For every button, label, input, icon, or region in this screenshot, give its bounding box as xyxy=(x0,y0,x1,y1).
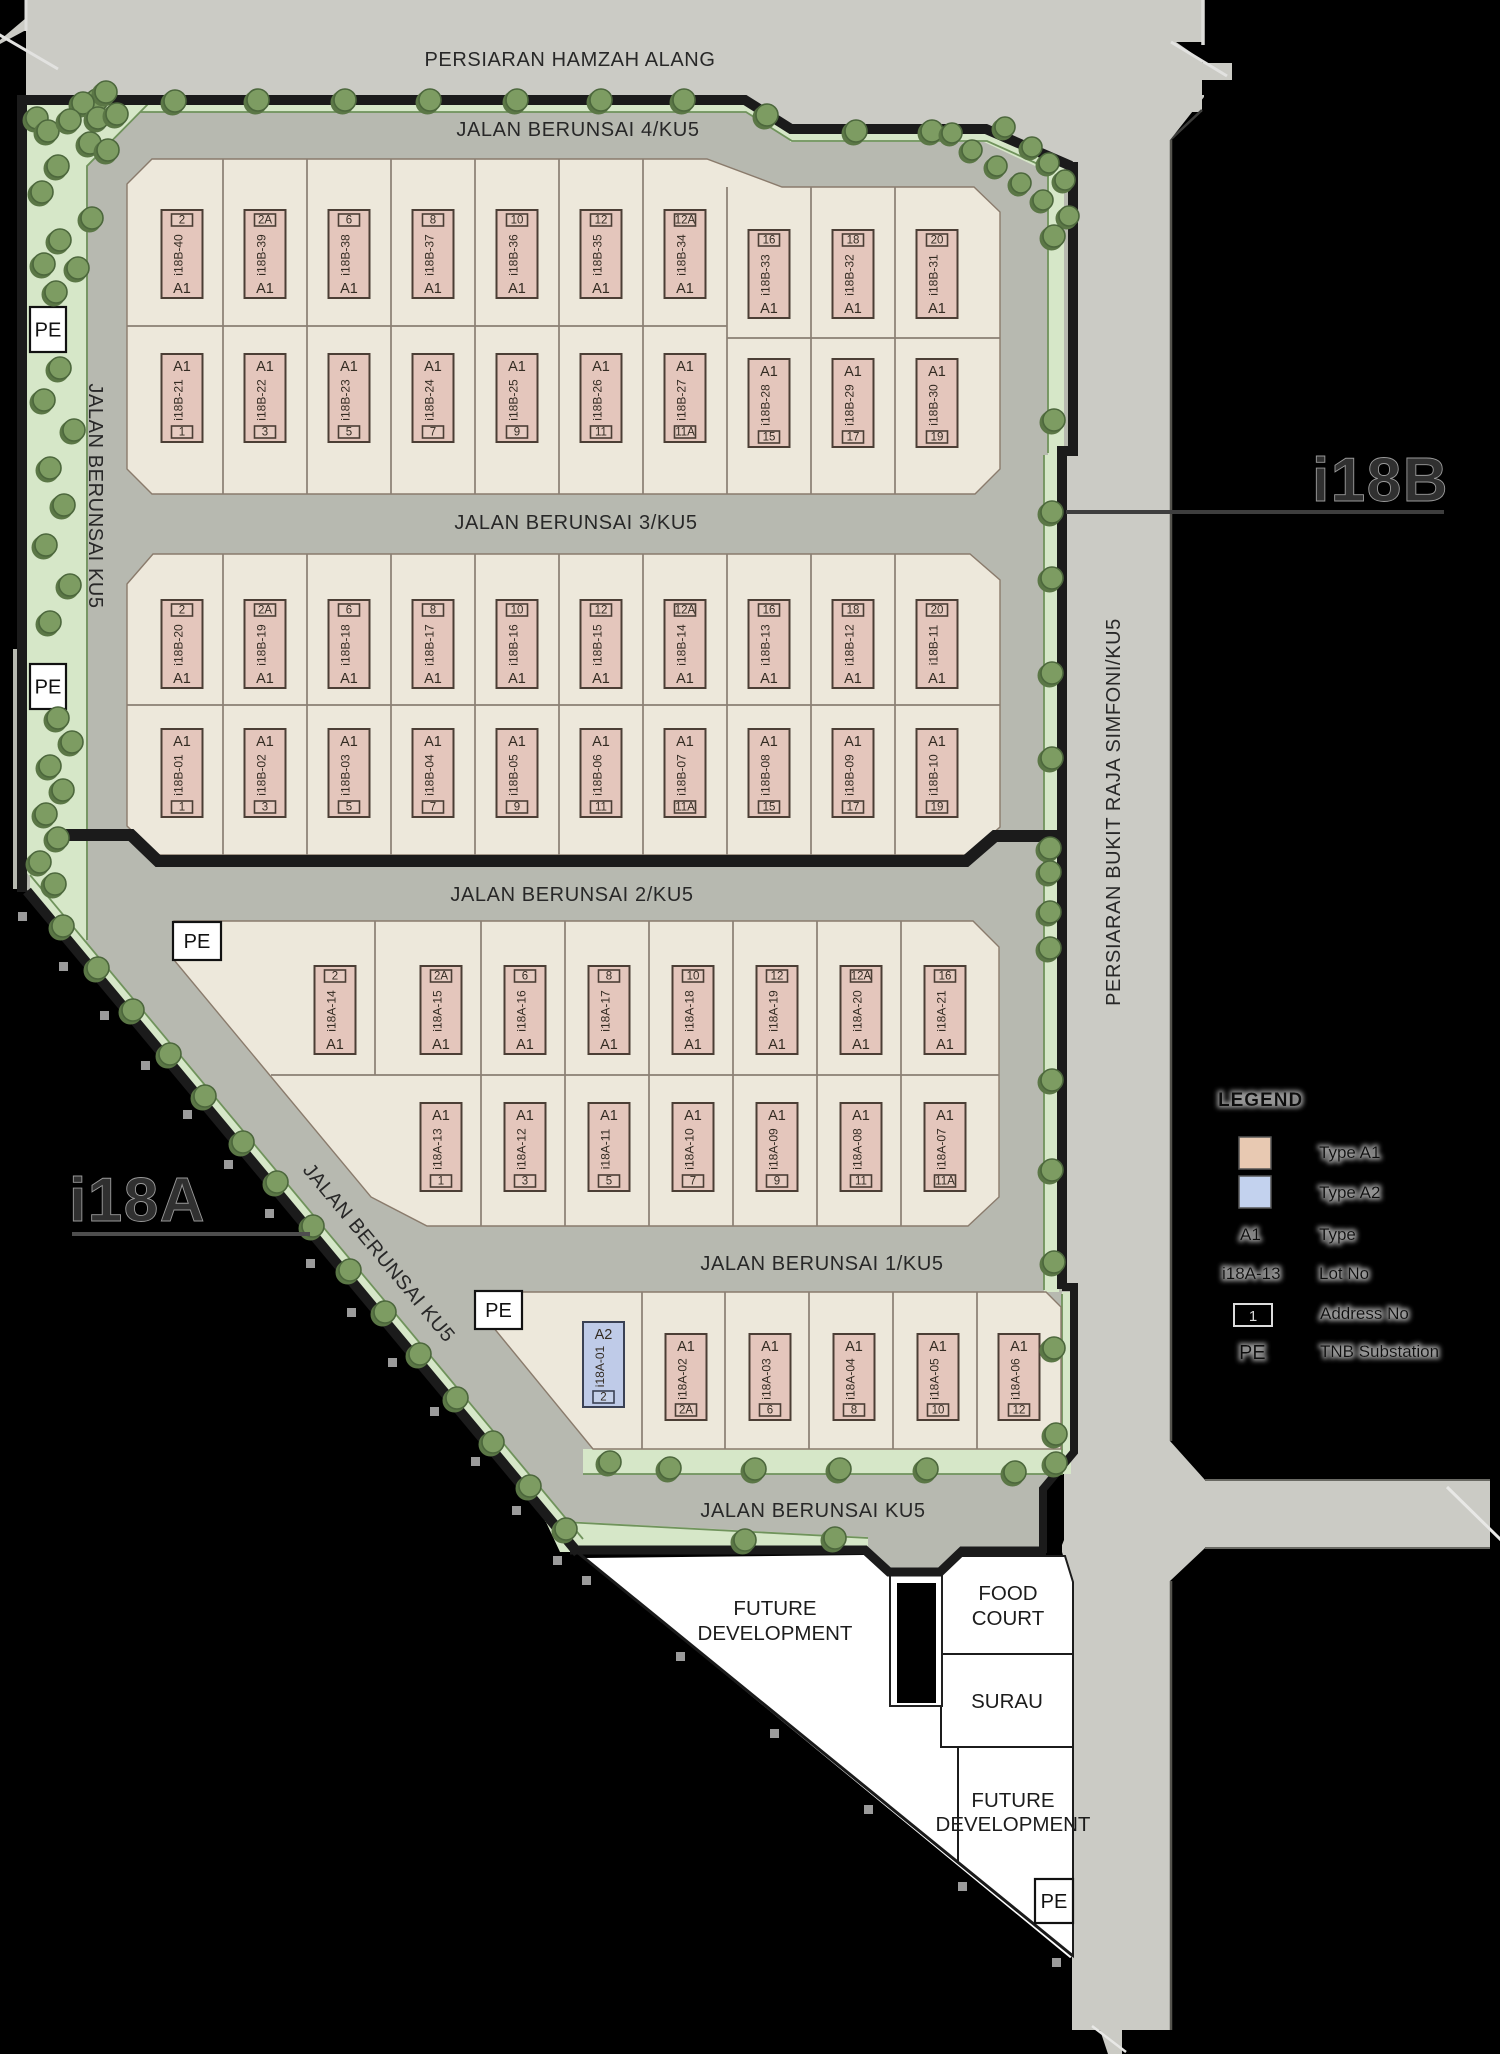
svg-text:2: 2 xyxy=(600,1392,606,1404)
svg-text:A1: A1 xyxy=(928,671,946,687)
svg-text:COURT: COURT xyxy=(972,1607,1045,1630)
svg-text:18: 18 xyxy=(847,605,860,617)
svg-text:A1: A1 xyxy=(340,281,358,297)
svg-text:8: 8 xyxy=(430,605,436,617)
svg-text:12A: 12A xyxy=(851,971,872,983)
svg-text:2: 2 xyxy=(332,971,338,983)
svg-text:A1: A1 xyxy=(592,281,610,297)
svg-text:A1: A1 xyxy=(508,359,526,375)
svg-text:1: 1 xyxy=(179,802,185,814)
svg-text:16: 16 xyxy=(939,971,952,983)
svg-text:A1: A1 xyxy=(768,1108,786,1124)
svg-text:A1: A1 xyxy=(844,734,862,750)
svg-text:i18A-06: i18A-06 xyxy=(1009,1358,1023,1400)
svg-text:A1: A1 xyxy=(845,1339,863,1355)
svg-text:i18B-13: i18B-13 xyxy=(759,624,773,666)
svg-text:12: 12 xyxy=(595,605,608,617)
svg-text:i18A-08: i18A-08 xyxy=(851,1128,865,1170)
svg-text:8: 8 xyxy=(430,215,436,227)
svg-text:A1: A1 xyxy=(852,1108,870,1124)
svg-text:5: 5 xyxy=(346,802,352,814)
svg-text:A1: A1 xyxy=(424,734,442,750)
svg-text:PE: PE xyxy=(1239,1342,1266,1364)
svg-text:i18A-01: i18A-01 xyxy=(593,1346,607,1388)
svg-text:A1: A1 xyxy=(684,1037,702,1053)
svg-text:i18B-28: i18B-28 xyxy=(759,384,773,426)
svg-text:i18A-09: i18A-09 xyxy=(767,1128,781,1170)
svg-text:A1: A1 xyxy=(508,734,526,750)
svg-text:i18B-30: i18B-30 xyxy=(927,384,941,426)
svg-text:Type A2: Type A2 xyxy=(1319,1183,1380,1202)
svg-text:i18B-27: i18B-27 xyxy=(675,379,689,421)
svg-text:19: 19 xyxy=(931,432,944,444)
svg-text:JALAN BERUNSAI 1/KU5: JALAN BERUNSAI 1/KU5 xyxy=(700,1253,943,1275)
svg-text:i18A-18: i18A-18 xyxy=(683,990,697,1032)
svg-text:i18B-15: i18B-15 xyxy=(591,624,605,666)
svg-text:i18B-18: i18B-18 xyxy=(339,624,353,666)
svg-text:A1: A1 xyxy=(592,671,610,687)
svg-text:i18A-13: i18A-13 xyxy=(1222,1264,1281,1283)
svg-text:i18B-07: i18B-07 xyxy=(675,754,689,796)
svg-text:i18B-11: i18B-11 xyxy=(927,624,941,665)
svg-text:i18B-40: i18B-40 xyxy=(172,234,186,276)
svg-text:i18B-26: i18B-26 xyxy=(591,379,605,421)
svg-text:A1: A1 xyxy=(173,281,191,297)
svg-text:A1: A1 xyxy=(929,1339,947,1355)
svg-text:i18B-22: i18B-22 xyxy=(255,379,269,421)
svg-text:i18A: i18A xyxy=(69,1166,206,1235)
svg-text:Type A1: Type A1 xyxy=(1319,1143,1380,1162)
svg-text:i18B-08: i18B-08 xyxy=(759,754,773,796)
svg-text:i18B-01: i18B-01 xyxy=(172,754,186,796)
svg-text:i18A-04: i18A-04 xyxy=(844,1358,858,1400)
svg-text:JALAN BERUNSAI KU5: JALAN BERUNSAI KU5 xyxy=(84,383,106,608)
svg-text:6: 6 xyxy=(346,215,352,227)
svg-text:i18B-02: i18B-02 xyxy=(255,754,269,796)
svg-text:1: 1 xyxy=(179,427,185,439)
svg-text:A1: A1 xyxy=(424,359,442,375)
svg-text:i18B-25: i18B-25 xyxy=(507,379,521,421)
svg-text:A1: A1 xyxy=(592,734,610,750)
svg-text:SURAU: SURAU xyxy=(971,1690,1043,1713)
svg-text:i18B-03: i18B-03 xyxy=(339,754,353,796)
svg-text:FUTURE: FUTURE xyxy=(971,1789,1054,1812)
svg-text:i18B-21: i18B-21 xyxy=(172,379,186,421)
svg-text:i18B-17: i18B-17 xyxy=(423,624,437,666)
svg-text:A1: A1 xyxy=(936,1108,954,1124)
svg-text:20: 20 xyxy=(931,235,944,247)
svg-text:11: 11 xyxy=(595,802,607,814)
svg-text:i18B-12: i18B-12 xyxy=(843,624,857,666)
svg-text:2A: 2A xyxy=(679,1405,693,1417)
svg-text:DEVELOPMENT: DEVELOPMENT xyxy=(698,1622,853,1645)
svg-text:A1: A1 xyxy=(256,734,274,750)
svg-text:2A: 2A xyxy=(258,215,272,227)
svg-text:12: 12 xyxy=(1013,1405,1026,1417)
svg-text:9: 9 xyxy=(514,427,520,439)
svg-text:7: 7 xyxy=(690,1176,696,1188)
svg-text:A1: A1 xyxy=(760,671,778,687)
svg-text:12A: 12A xyxy=(675,215,696,227)
svg-text:i18B-16: i18B-16 xyxy=(507,624,521,666)
svg-text:2: 2 xyxy=(179,605,185,617)
svg-text:10: 10 xyxy=(511,215,524,227)
svg-text:A1: A1 xyxy=(676,359,694,375)
svg-text:i18A-11: i18A-11 xyxy=(599,1128,613,1169)
svg-text:3: 3 xyxy=(262,427,268,439)
svg-text:A1: A1 xyxy=(516,1108,534,1124)
svg-text:i18B-38: i18B-38 xyxy=(339,234,353,276)
svg-text:A1: A1 xyxy=(173,671,191,687)
svg-text:i18A-03: i18A-03 xyxy=(760,1358,774,1400)
svg-text:i18B-06: i18B-06 xyxy=(591,754,605,796)
svg-text:6: 6 xyxy=(346,605,352,617)
svg-text:A1: A1 xyxy=(928,364,946,380)
svg-text:A1: A1 xyxy=(600,1108,618,1124)
svg-text:A1: A1 xyxy=(432,1037,450,1053)
svg-text:i18B: i18B xyxy=(1312,446,1449,515)
svg-text:i18A-07: i18A-07 xyxy=(935,1128,949,1170)
svg-text:PE: PE xyxy=(485,1300,512,1322)
svg-text:A1: A1 xyxy=(677,1339,695,1355)
svg-text:A1: A1 xyxy=(852,1037,870,1053)
svg-text:2A: 2A xyxy=(258,605,272,617)
svg-text:A1: A1 xyxy=(760,301,778,317)
svg-text:i18B-31: i18B-31 xyxy=(927,254,941,296)
svg-text:PE: PE xyxy=(35,320,62,342)
svg-text:A1: A1 xyxy=(424,671,442,687)
svg-text:i18B-10: i18B-10 xyxy=(927,754,941,796)
svg-text:20: 20 xyxy=(931,605,944,617)
svg-text:i18B-04: i18B-04 xyxy=(423,754,437,796)
svg-text:i18A-19: i18A-19 xyxy=(767,990,781,1032)
svg-text:A1: A1 xyxy=(761,1339,779,1355)
svg-text:10: 10 xyxy=(687,971,700,983)
svg-text:i18B-14: i18B-14 xyxy=(675,624,689,666)
svg-text:A1: A1 xyxy=(1010,1339,1028,1355)
svg-text:Address No: Address No xyxy=(1320,1304,1409,1323)
svg-text:1: 1 xyxy=(438,1176,444,1188)
svg-text:i18A-17: i18A-17 xyxy=(599,990,613,1032)
svg-text:PE: PE xyxy=(35,677,62,699)
svg-text:12A: 12A xyxy=(675,605,696,617)
svg-text:11: 11 xyxy=(855,1176,867,1188)
svg-text:12: 12 xyxy=(595,215,608,227)
svg-text:9: 9 xyxy=(774,1176,780,1188)
svg-text:PE: PE xyxy=(1041,1891,1068,1913)
svg-text:A1: A1 xyxy=(256,359,274,375)
svg-text:8: 8 xyxy=(851,1405,857,1417)
svg-text:A1: A1 xyxy=(326,1037,344,1053)
svg-text:i18B-09: i18B-09 xyxy=(843,754,857,796)
svg-text:6: 6 xyxy=(522,971,528,983)
svg-text:FUTURE: FUTURE xyxy=(733,1597,816,1620)
svg-text:i18B-29: i18B-29 xyxy=(843,384,857,426)
svg-text:17: 17 xyxy=(847,802,860,814)
svg-text:A1: A1 xyxy=(256,281,274,297)
svg-text:FOOD: FOOD xyxy=(978,1582,1037,1605)
svg-text:i18B-37: i18B-37 xyxy=(423,234,437,276)
svg-text:10: 10 xyxy=(932,1405,945,1417)
svg-text:i18A-10: i18A-10 xyxy=(683,1128,697,1170)
svg-text:11A: 11A xyxy=(675,427,695,439)
svg-text:A1: A1 xyxy=(340,734,358,750)
svg-text:PERSIARAN BUKIT RAJA SIMFONI/K: PERSIARAN BUKIT RAJA SIMFONI/KU5 xyxy=(1103,618,1125,1006)
svg-text:i18A-13: i18A-13 xyxy=(431,1128,445,1170)
svg-text:2: 2 xyxy=(179,215,185,227)
svg-text:15: 15 xyxy=(763,802,776,814)
svg-text:A1: A1 xyxy=(684,1108,702,1124)
svg-text:A1: A1 xyxy=(508,671,526,687)
svg-text:JALAN BERUNSAI 3/KU5: JALAN BERUNSAI 3/KU5 xyxy=(454,512,697,534)
svg-text:16: 16 xyxy=(763,235,776,247)
svg-text:A1: A1 xyxy=(173,359,191,375)
svg-text:A1: A1 xyxy=(844,671,862,687)
svg-text:3: 3 xyxy=(522,1176,528,1188)
svg-text:A1: A1 xyxy=(516,1037,534,1053)
svg-text:A1: A1 xyxy=(844,364,862,380)
svg-text:9: 9 xyxy=(514,802,520,814)
svg-text:i18A-05: i18A-05 xyxy=(928,1358,942,1400)
svg-text:A1: A1 xyxy=(676,734,694,750)
svg-text:i18B-34: i18B-34 xyxy=(675,234,689,276)
svg-text:16: 16 xyxy=(763,605,776,617)
svg-text:17: 17 xyxy=(847,432,860,444)
svg-text:3: 3 xyxy=(262,802,268,814)
svg-text:12: 12 xyxy=(771,971,784,983)
svg-text:i18A-21: i18A-21 xyxy=(935,990,949,1032)
svg-text:19: 19 xyxy=(931,802,944,814)
svg-text:LEGEND: LEGEND xyxy=(1218,1090,1303,1111)
svg-text:A1: A1 xyxy=(256,671,274,687)
svg-text:5: 5 xyxy=(606,1176,612,1188)
svg-text:1: 1 xyxy=(1249,1308,1257,1325)
svg-text:A1: A1 xyxy=(928,301,946,317)
svg-text:A1: A1 xyxy=(592,359,610,375)
svg-text:i18A-20: i18A-20 xyxy=(851,990,865,1032)
svg-text:18: 18 xyxy=(847,235,860,247)
svg-text:i18B-33: i18B-33 xyxy=(759,254,773,296)
svg-text:i18A-15: i18A-15 xyxy=(431,990,445,1032)
svg-text:7: 7 xyxy=(430,427,436,439)
svg-text:i18B-39: i18B-39 xyxy=(255,234,269,276)
svg-text:A1: A1 xyxy=(676,281,694,297)
svg-text:i18B-05: i18B-05 xyxy=(507,754,521,796)
svg-text:A1: A1 xyxy=(760,734,778,750)
svg-text:TNB Substation: TNB Substation xyxy=(1320,1342,1439,1361)
svg-text:i18B-24: i18B-24 xyxy=(423,379,437,421)
svg-text:6: 6 xyxy=(767,1405,773,1417)
svg-text:5: 5 xyxy=(346,427,352,439)
svg-text:A1: A1 xyxy=(340,671,358,687)
svg-text:A1: A1 xyxy=(432,1108,450,1124)
svg-text:A1: A1 xyxy=(936,1037,954,1053)
svg-text:i18A-02: i18A-02 xyxy=(676,1358,690,1400)
svg-text:JALAN BERUNSAI 4/KU5: JALAN BERUNSAI 4/KU5 xyxy=(456,119,699,141)
svg-text:i18A-12: i18A-12 xyxy=(515,1128,529,1170)
svg-text:i18B-36: i18B-36 xyxy=(507,234,521,276)
svg-text:PE: PE xyxy=(184,931,211,953)
svg-text:A1: A1 xyxy=(928,734,946,750)
svg-text:i18B-23: i18B-23 xyxy=(339,379,353,421)
svg-text:i18B-32: i18B-32 xyxy=(843,254,857,296)
svg-text:i18B-20: i18B-20 xyxy=(172,624,186,666)
svg-text:A1: A1 xyxy=(676,671,694,687)
svg-text:i18A-16: i18A-16 xyxy=(515,990,529,1032)
svg-text:JALAN BERUNSAI KU5: JALAN BERUNSAI KU5 xyxy=(700,1500,925,1522)
svg-text:Type: Type xyxy=(1319,1225,1356,1244)
svg-text:A1: A1 xyxy=(340,359,358,375)
svg-text:A1: A1 xyxy=(768,1037,786,1053)
svg-text:A1: A1 xyxy=(1240,1225,1261,1244)
svg-text:2A: 2A xyxy=(434,971,448,983)
svg-text:JALAN BERUNSAI 2/KU5: JALAN BERUNSAI 2/KU5 xyxy=(450,884,693,906)
svg-text:i18B-19: i18B-19 xyxy=(255,624,269,666)
svg-text:A1: A1 xyxy=(508,281,526,297)
svg-text:11A: 11A xyxy=(675,802,695,814)
svg-text:7: 7 xyxy=(430,802,436,814)
svg-text:Lot No: Lot No xyxy=(1319,1264,1369,1283)
svg-text:11: 11 xyxy=(595,427,607,439)
svg-text:A1: A1 xyxy=(424,281,442,297)
svg-text:i18B-35: i18B-35 xyxy=(591,234,605,276)
svg-text:i18A-14: i18A-14 xyxy=(325,990,339,1032)
svg-text:15: 15 xyxy=(763,432,776,444)
svg-text:A1: A1 xyxy=(760,364,778,380)
svg-text:10: 10 xyxy=(511,605,524,617)
svg-text:8: 8 xyxy=(606,971,612,983)
svg-text:A1: A1 xyxy=(600,1037,618,1053)
svg-text:DEVELOPMENT: DEVELOPMENT xyxy=(936,1813,1091,1836)
svg-text:A1: A1 xyxy=(844,301,862,317)
svg-text:PERSIARAN HAMZAH ALANG: PERSIARAN HAMZAH ALANG xyxy=(424,49,715,71)
svg-text:A2: A2 xyxy=(595,1327,613,1343)
svg-text:A1: A1 xyxy=(173,734,191,750)
svg-text:11A: 11A xyxy=(935,1176,955,1188)
